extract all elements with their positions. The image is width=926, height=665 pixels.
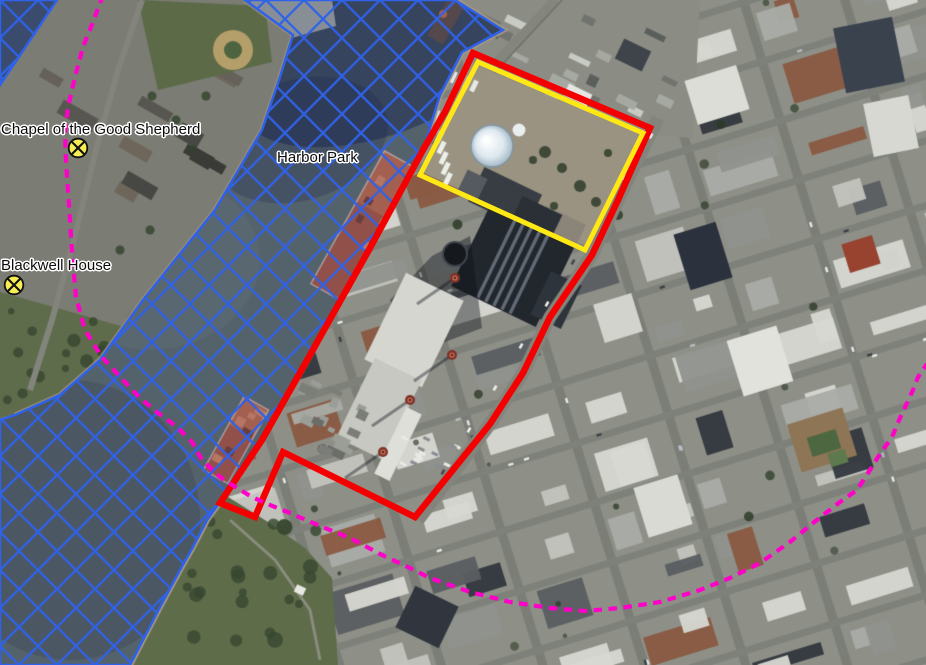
map-viewport[interactable]: Chapel of the Good Shepherd Harbor Park … bbox=[0, 0, 926, 665]
blackwell-poi-circle-x-icon[interactable] bbox=[2, 273, 26, 297]
place-label-blackwell-house: Blackwell House bbox=[1, 257, 111, 274]
place-label-chapel: Chapel of the Good Shepherd bbox=[1, 121, 200, 138]
chapel-poi-circle-x-icon[interactable] bbox=[66, 136, 90, 160]
satellite-imagery bbox=[0, 0, 926, 665]
place-label-harbor-park: Harbor Park bbox=[277, 149, 358, 166]
